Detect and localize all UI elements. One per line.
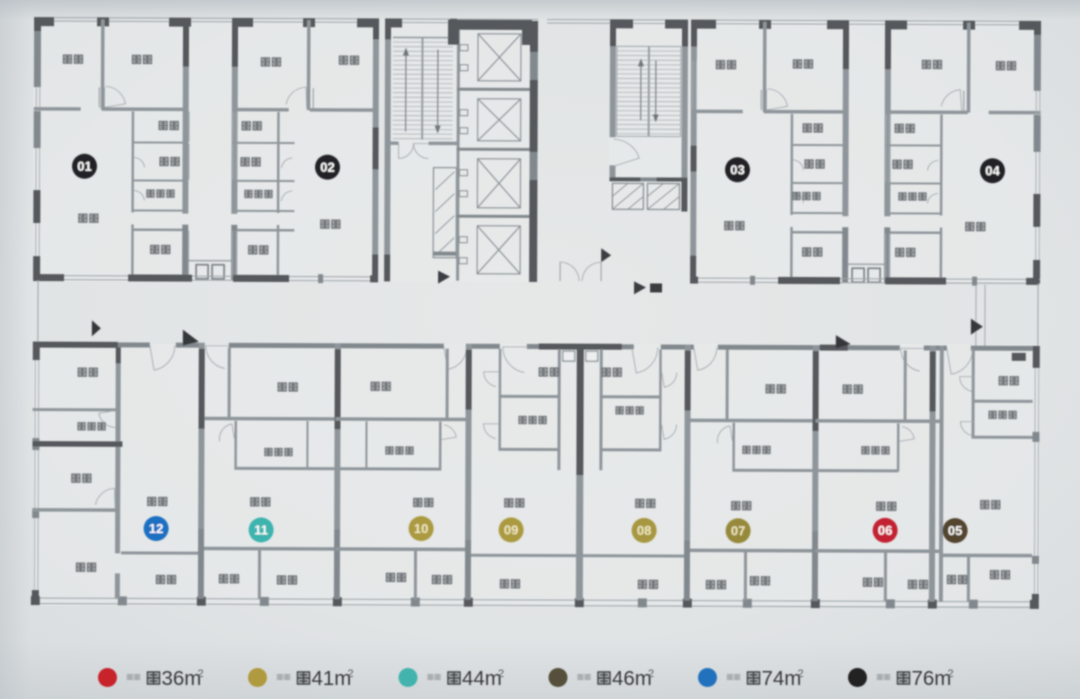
svg-text:10: 10 bbox=[414, 521, 429, 536]
svg-text:2: 2 bbox=[948, 668, 954, 680]
svg-text:12: 12 bbox=[149, 521, 164, 536]
svg-text:02: 02 bbox=[320, 160, 335, 175]
svg-text:05: 05 bbox=[948, 523, 963, 538]
svg-text:2: 2 bbox=[498, 668, 504, 680]
svg-text:76m: 76m bbox=[912, 667, 952, 690]
svg-text:07: 07 bbox=[731, 523, 746, 538]
svg-text:01: 01 bbox=[77, 159, 92, 174]
svg-text:08: 08 bbox=[637, 523, 652, 538]
svg-text:2: 2 bbox=[198, 668, 204, 680]
svg-text:03: 03 bbox=[730, 162, 745, 177]
svg-text:2: 2 bbox=[348, 668, 354, 680]
svg-text:41m: 41m bbox=[312, 667, 352, 690]
svg-text:44m: 44m bbox=[462, 667, 502, 690]
svg-text:11: 11 bbox=[254, 523, 268, 538]
svg-text:74m: 74m bbox=[762, 667, 802, 690]
svg-text:36m: 36m bbox=[162, 667, 202, 690]
svg-text:2: 2 bbox=[798, 668, 804, 680]
svg-text:09: 09 bbox=[504, 523, 519, 538]
svg-text:46m: 46m bbox=[612, 667, 652, 690]
svg-text:06: 06 bbox=[878, 523, 893, 538]
svg-text:04: 04 bbox=[985, 163, 1000, 178]
svg-text:2: 2 bbox=[648, 668, 654, 680]
